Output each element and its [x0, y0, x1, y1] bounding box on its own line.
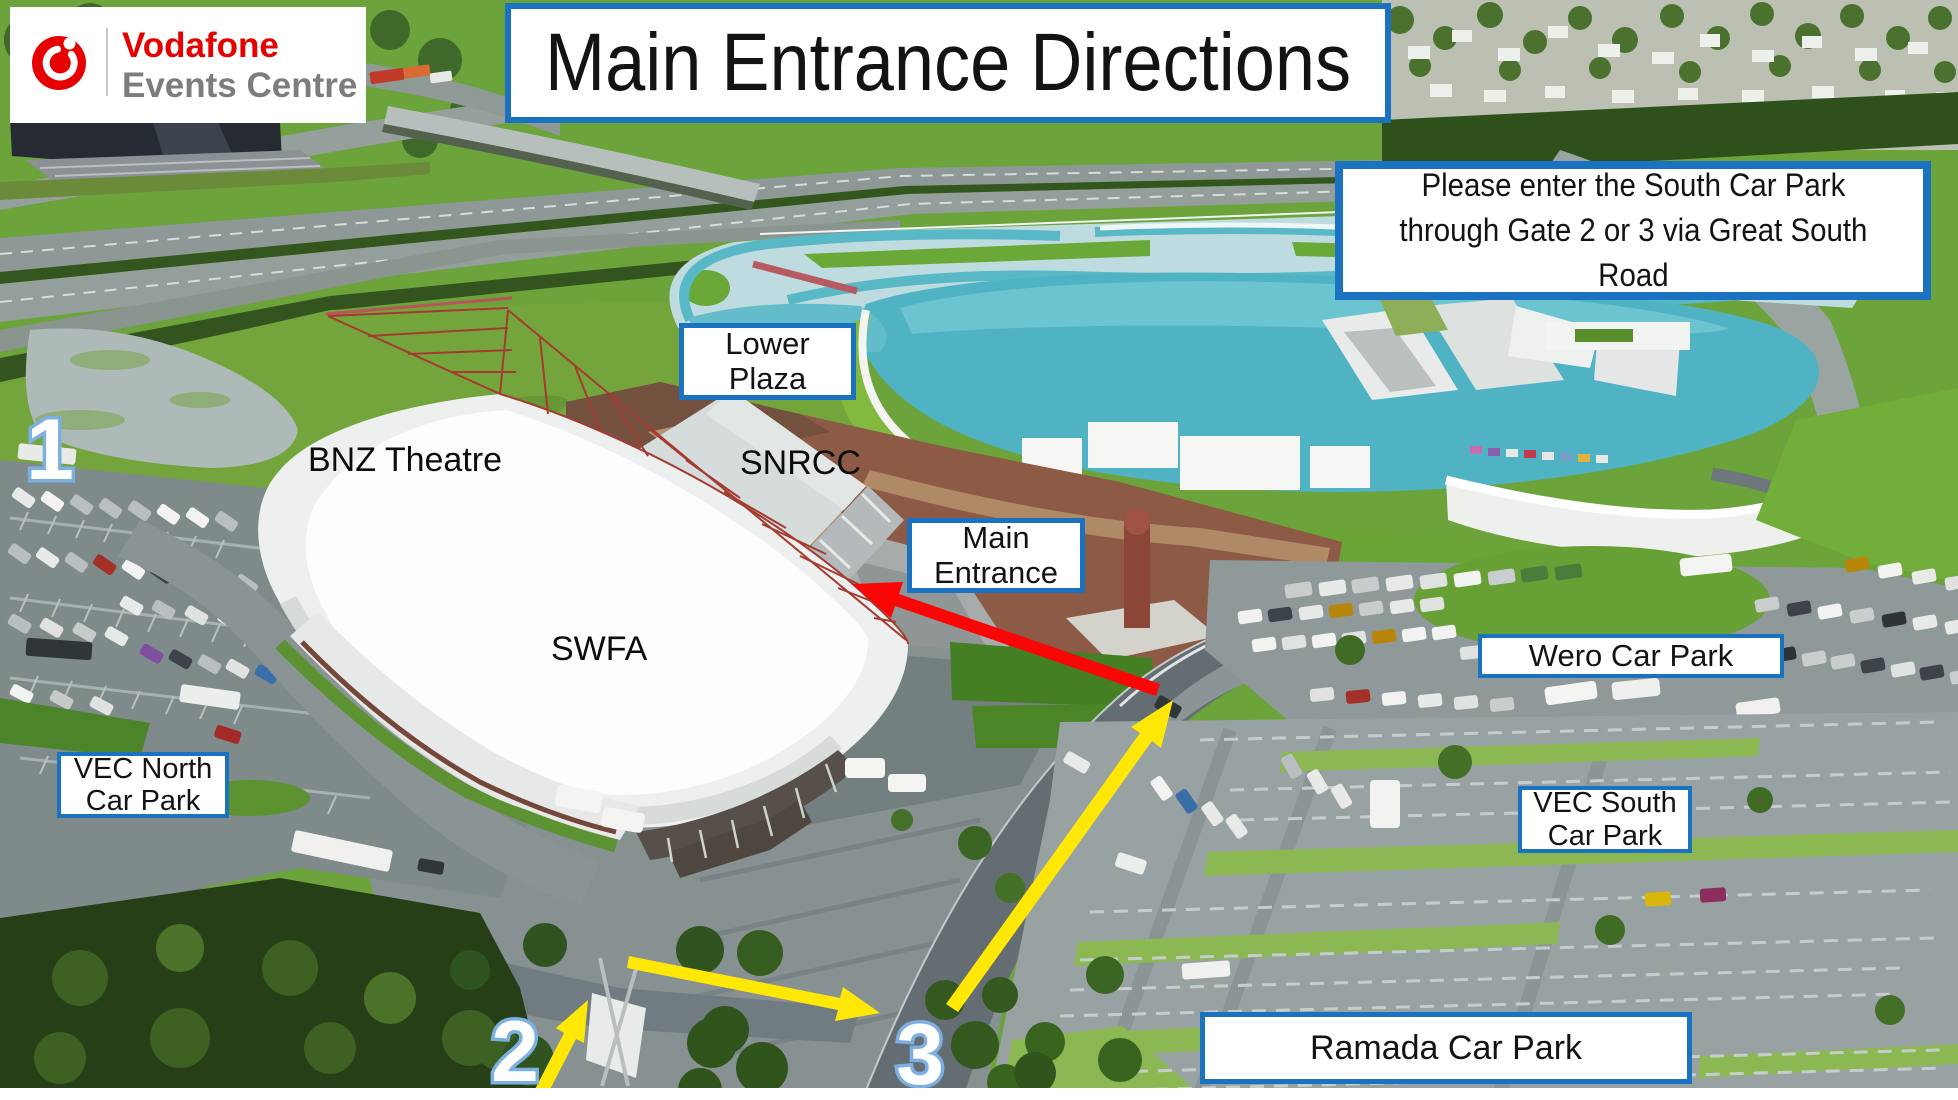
- svg-text:1: 1: [26, 402, 74, 498]
- svg-text:2: 2: [491, 1004, 539, 1100]
- svg-text:3: 3: [896, 1007, 944, 1100]
